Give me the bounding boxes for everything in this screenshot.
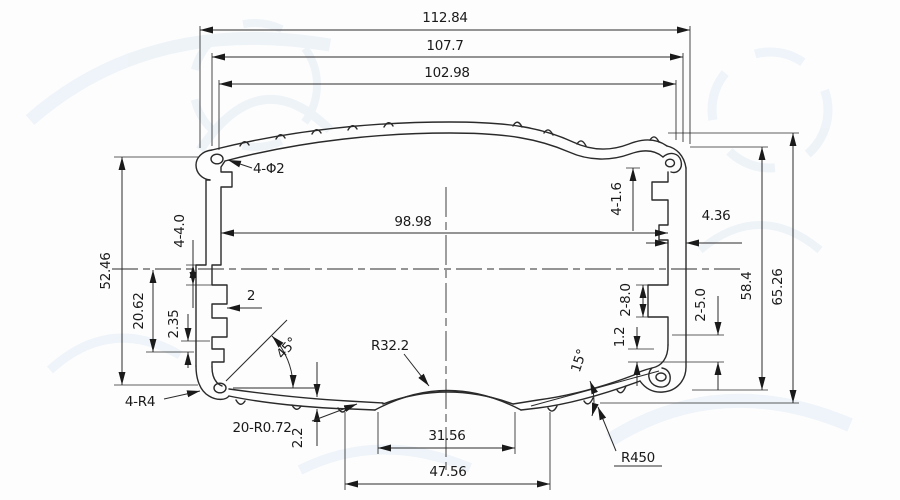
dim-rib-12: 1.2 <box>612 327 628 348</box>
dim-tab-2: 2 <box>247 288 255 304</box>
dim-thickness-22: 2.2 <box>290 428 306 449</box>
dim-height-6526: 65.26 <box>770 268 786 305</box>
angle-15-ray <box>531 371 659 406</box>
top-wall-inner <box>225 133 663 161</box>
label-bump-radius: R32.2 <box>371 338 409 354</box>
dim-bump-width: 31.56 <box>428 428 465 444</box>
center-bump-outer <box>375 391 521 411</box>
dim-height-2062: 20.62 <box>131 292 147 329</box>
screw-hole-top-right <box>666 159 675 167</box>
dim-slots-440: 4-4.0 <box>172 214 188 247</box>
leader-corner-radius <box>164 391 200 399</box>
dim-height-5246: 52.46 <box>98 252 114 289</box>
dim-slots-280: 2-8.0 <box>618 283 634 316</box>
left-wall-inner <box>212 161 232 367</box>
label-serration-radius: 20-R0.72 <box>232 420 291 436</box>
label-corner-holes: 4-Φ2 <box>253 161 284 177</box>
extension-lines <box>114 26 799 490</box>
corner-bottom-right-inner <box>634 345 668 375</box>
dim-inner-width: 98.98 <box>394 214 431 230</box>
label-bottom-radius: R450 <box>621 450 655 466</box>
dim-ribs-416: 4-1.6 <box>609 182 625 215</box>
bottom-serrations <box>236 386 626 412</box>
drawing-sheet: 112.84 107.7 102.98 98.98 4.36 52.46 20.… <box>0 0 900 500</box>
leader-serration-radius <box>312 404 357 421</box>
dim-height-235: 2.35 <box>166 310 182 339</box>
right-wall-outer <box>640 168 686 392</box>
right-wall-inner <box>648 172 668 345</box>
screw-hole-bottom-right <box>656 373 666 381</box>
dim-overall-width: 112.84 <box>422 10 467 26</box>
screw-hole-top-left <box>211 154 223 164</box>
corner-top-right <box>667 146 686 168</box>
dim-height-584: 58.4 <box>739 272 755 301</box>
center-bump-inner <box>383 392 513 404</box>
dim-width-107: 107.7 <box>426 38 463 54</box>
label-angle-15: 15° <box>568 347 590 374</box>
top-ribs <box>240 122 659 146</box>
leader-bump-radius <box>404 354 429 386</box>
leader-holes <box>228 160 252 168</box>
dim-wall-436: 4.36 <box>702 208 731 224</box>
left-wall-outer <box>196 180 210 366</box>
label-corner-radius: 4-R4 <box>125 394 155 410</box>
dim-width-102: 102.98 <box>424 65 469 81</box>
dim-bump-outer-width: 47.56 <box>429 464 466 480</box>
bottom-right-hook <box>649 368 670 387</box>
dim-slots-250: 2-5.0 <box>693 288 709 321</box>
corner-top-left <box>196 150 212 180</box>
leader-bottom-radius <box>598 407 616 451</box>
extrusion-cross-section-drawing: 112.84 107.7 102.98 98.98 4.36 52.46 20.… <box>0 0 900 500</box>
bottom-wall-outer-right <box>521 381 640 410</box>
label-angle-45: 45° <box>273 334 300 362</box>
